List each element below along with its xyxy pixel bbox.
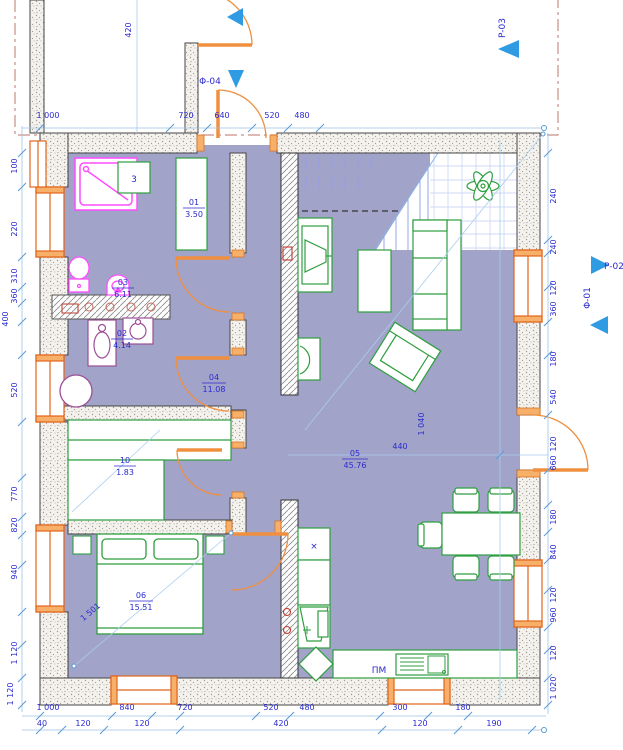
room-area: 11.08 <box>203 385 226 394</box>
dim-label: 240 <box>549 188 558 203</box>
dim-label: 1 000 <box>37 111 60 120</box>
room-number: 05 <box>350 449 360 458</box>
room-area: 3.50 <box>185 210 203 219</box>
room-area: 4.14 <box>113 341 131 350</box>
dim-label: 100 <box>10 158 19 173</box>
dim-label: 960 <box>549 607 558 622</box>
dim-label: 360 <box>549 301 558 316</box>
room-number: 10 <box>120 456 130 465</box>
dim-label: 770 <box>10 486 19 501</box>
dining-chair <box>453 488 479 512</box>
floor-plan-svg: 1 000 720 640 520 480 420 1 000 840 720 … <box>0 0 623 750</box>
dining-chair <box>488 556 514 580</box>
dim-label: 1 040 <box>417 413 426 436</box>
tv-stand <box>298 218 332 292</box>
wall-right-1 <box>517 133 540 250</box>
dim-label: 840 <box>549 544 558 559</box>
dim-label: 360 <box>10 288 19 303</box>
nightstand-left <box>73 536 91 554</box>
dim-label: 120 <box>75 719 90 728</box>
dim-label: 640 <box>214 111 229 120</box>
vanity-counter <box>52 295 170 319</box>
dim-label: 820 <box>10 517 19 532</box>
floor-plan-page: 1 000 720 640 520 480 420 1 000 840 720 … <box>0 0 623 750</box>
dim-label: 120 <box>412 719 427 728</box>
dim-label: 720 <box>178 111 193 120</box>
dim-label: 180 <box>549 509 558 524</box>
marker-label-p02: P-02 <box>604 262 623 272</box>
dim-label: 1 000 <box>37 703 60 712</box>
window-bottom-2 <box>388 676 450 704</box>
dim-label: 520 <box>263 703 278 712</box>
kitchen-counter-horizontal <box>333 650 517 678</box>
wall-top-right <box>277 133 537 153</box>
dim-label: 120 <box>134 719 149 728</box>
sofa <box>413 220 461 330</box>
wall-bottom-2 <box>177 678 388 705</box>
dim-label: 300 <box>392 703 407 712</box>
window-right-2 <box>514 560 542 627</box>
room-number: 02 <box>117 329 127 338</box>
dim-label: 440 <box>392 442 407 451</box>
door-swing-entrance-top <box>198 0 252 45</box>
wall-chimney-lower <box>281 500 298 678</box>
box3-label: 3 <box>131 175 137 185</box>
room-area: 6.11 <box>114 290 132 299</box>
marker-triangle-f01 <box>590 316 608 334</box>
window-bottom-1 <box>111 676 177 704</box>
dining-table <box>442 513 520 555</box>
section-cut-line <box>15 0 558 135</box>
window-left-1 <box>36 187 64 257</box>
dim-label: 520 <box>10 382 19 397</box>
dim-label: 310 <box>10 268 19 283</box>
dim-label: 400 <box>1 311 10 326</box>
wall-bottom-3 <box>450 678 540 705</box>
wall-chimney-upper <box>281 153 298 395</box>
dim-label: 120 <box>549 645 558 660</box>
dim-label: 1 020 <box>549 677 558 700</box>
dim-label: 420 <box>273 719 288 728</box>
dim-label: 720 <box>177 703 192 712</box>
marker-triangle-f04 <box>228 70 244 88</box>
window-left-3 <box>36 525 64 612</box>
marker-label-f04: Φ-04 <box>199 77 221 87</box>
dim-label: 480 <box>299 703 314 712</box>
dim-label: 1 120 <box>10 642 19 665</box>
dim-label: 840 <box>119 703 134 712</box>
dishwasher-label: ПМ <box>372 666 387 676</box>
marker-label-f01: Φ-01 <box>583 287 593 309</box>
dim-label: 660 <box>549 455 558 470</box>
room-area: 45.76 <box>344 461 367 470</box>
wall-right-2 <box>517 322 540 415</box>
wall-interior-1 <box>230 153 246 253</box>
dim-label: 240 <box>549 239 558 254</box>
dim-label: 480 <box>294 111 309 120</box>
room-number: 04 <box>209 373 219 382</box>
window-right-1 <box>514 250 542 322</box>
dining-chair <box>488 488 514 512</box>
dimension-end-circles <box>542 126 547 733</box>
room-number: 03 <box>118 278 128 287</box>
dim-label: 120 <box>549 280 558 295</box>
marker-label-p03: P-03 <box>498 18 508 38</box>
room-area: 1.83 <box>116 468 134 477</box>
wall-bottom-1 <box>40 678 111 705</box>
marker-triangle-p03 <box>498 40 519 58</box>
dim-label: 180 <box>549 351 558 366</box>
dim-label: 40 <box>37 719 47 728</box>
console-cabinet <box>298 338 320 380</box>
room-number: 06 <box>136 591 146 600</box>
sink-1 <box>88 320 116 366</box>
wall-bedroom-top <box>68 520 232 534</box>
nightstand-right <box>206 536 224 554</box>
dim-label: 940 <box>10 564 19 579</box>
dining-chair <box>453 556 479 580</box>
washing-machine <box>60 375 92 407</box>
cooktop-label: × <box>310 542 318 552</box>
wall-interior-5 <box>45 406 231 420</box>
marker-triangle-top <box>227 8 243 26</box>
room-area: 15.51 <box>130 603 153 612</box>
toilet <box>69 257 89 292</box>
wall-left-3 <box>40 422 68 525</box>
dim-label: 1 120 <box>6 683 15 706</box>
dim-label: 420 <box>124 22 133 37</box>
dim-label: 120 <box>549 436 558 451</box>
dim-label: 120 <box>549 587 558 602</box>
window-top-left-small <box>30 141 46 187</box>
dim-label: 540 <box>549 389 558 404</box>
dim-label: 180 <box>455 703 470 712</box>
room-number: 01 <box>189 198 199 207</box>
dim-label: 520 <box>264 111 279 120</box>
bed <box>97 534 203 634</box>
door-swing-main-entry <box>533 415 588 470</box>
dim-label: 220 <box>10 221 19 236</box>
range-hood <box>298 605 330 648</box>
dim-label: 190 <box>486 719 501 728</box>
coffee-table <box>358 250 391 312</box>
dining-chair <box>418 522 442 548</box>
